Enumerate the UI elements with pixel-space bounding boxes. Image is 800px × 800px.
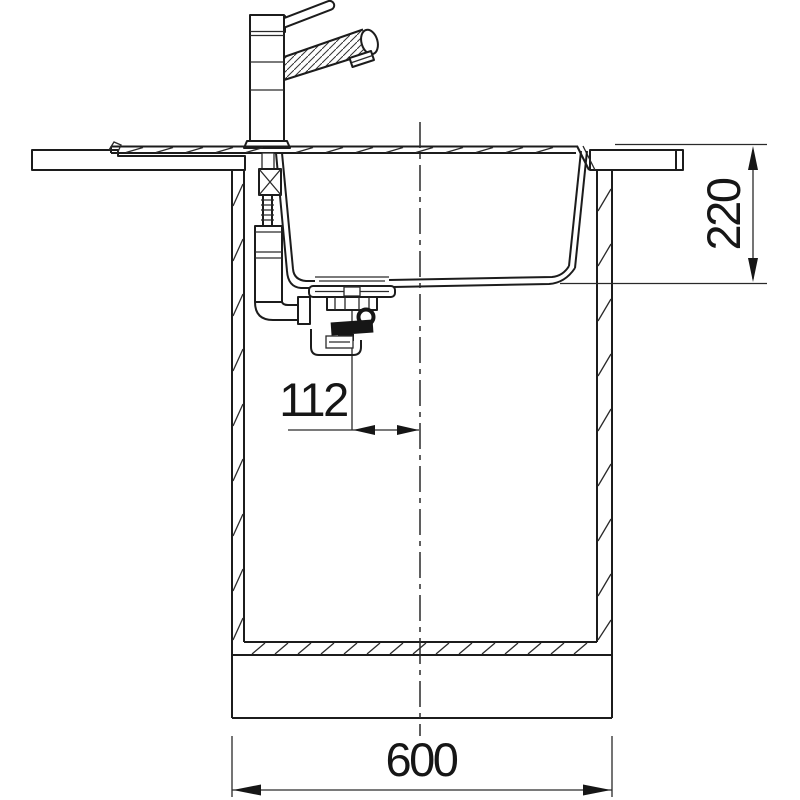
elbow-flange (298, 297, 310, 324)
countertop-right-section (590, 150, 683, 170)
waste-seal-gasket (331, 320, 374, 336)
faucet-spout (284, 28, 381, 80)
hose-coupling (255, 226, 282, 302)
drawing-canvas: 220 112 600 (0, 0, 800, 800)
arrow-right-icon (583, 785, 611, 796)
arrow-left-icon (233, 785, 261, 796)
threaded-rod (261, 195, 274, 226)
arrow-right-icon (397, 425, 419, 435)
cabinet-left-hatch (233, 184, 243, 640)
sink-section-diagram: 220 112 600 (0, 0, 800, 800)
strainer-locknut (327, 297, 377, 310)
sink-bowl (276, 151, 587, 288)
dim-label-cabinet-width: 600 (386, 733, 458, 786)
faucet-body (244, 15, 290, 148)
arrow-down-icon (748, 258, 758, 282)
faucet (244, 0, 381, 148)
faucet-supply-assembly (255, 153, 310, 324)
dimension-cabinet-width: 600 (232, 733, 612, 797)
dim-label-sink-depth: 220 (697, 178, 750, 250)
mounting-clamp (259, 169, 281, 195)
base-cabinet (232, 170, 612, 718)
cabinet-right-hatch (598, 189, 611, 640)
arrow-left-icon (353, 425, 375, 435)
dim-label-drain-offset: 112 (279, 373, 347, 426)
dimension-sink-depth: 220 (560, 145, 767, 284)
dimension-drain-offset: 112 (279, 373, 419, 435)
arrow-up-icon (748, 146, 758, 170)
rim-hatch (126, 148, 553, 153)
strainer-screw (344, 287, 360, 296)
faucet-shank (262, 153, 274, 169)
